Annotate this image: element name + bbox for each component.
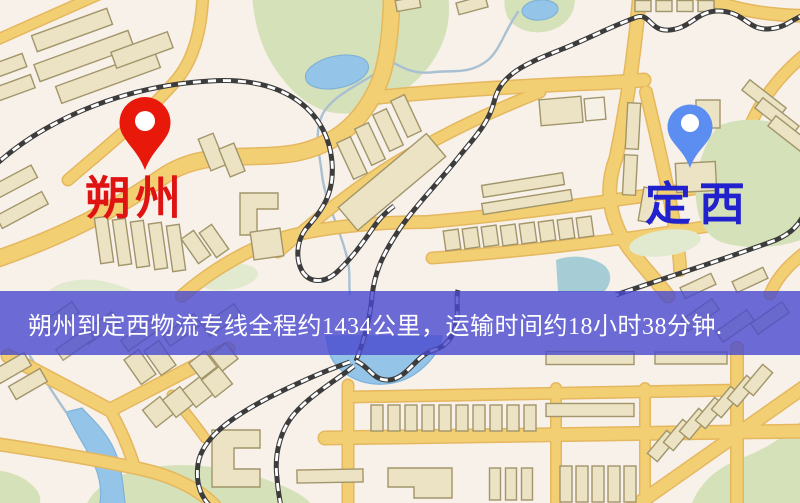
map-canvas: 朔州 定西 xyxy=(0,0,800,503)
dingxi-label: 定西 xyxy=(645,179,753,230)
route-info-text: 朔州到定西物流专线全程约1434公里，运输时间约18小时38分钟. xyxy=(28,306,723,341)
route-info-banner: 朔州到定西物流专线全程约1434公里，运输时间约18小时38分钟. xyxy=(0,291,800,355)
pin-hole xyxy=(135,111,155,131)
pin-hole xyxy=(681,114,699,132)
map-screenshot: 朔州 定西 朔州到定西物流专线全程约1434公里，运输时间约18小时38分钟. xyxy=(0,0,800,503)
shuozhou-label: 朔州 xyxy=(85,173,185,224)
